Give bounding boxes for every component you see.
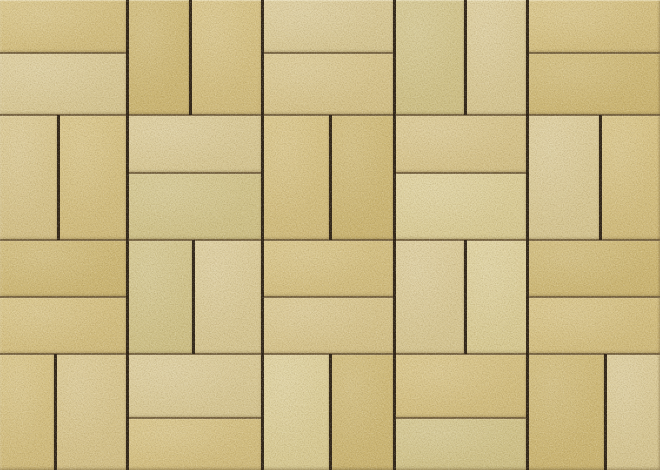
paver-brick <box>394 173 527 240</box>
paver-brick <box>262 115 330 240</box>
paver-brick <box>527 297 660 354</box>
paver-brick <box>55 354 127 470</box>
vertical-mortar-joint <box>604 354 607 470</box>
paver-brick <box>0 115 58 240</box>
paver-brick <box>127 0 190 115</box>
paver-brick <box>394 115 527 173</box>
horizontal-mortar-joint <box>394 172 527 174</box>
horizontal-mortar-joint <box>262 296 394 298</box>
horizontal-mortar-joint <box>394 417 527 419</box>
paver-brick <box>127 418 262 470</box>
vertical-mortar-joint <box>464 0 467 115</box>
paver-brick <box>527 240 660 297</box>
vertical-mortar-joint <box>57 115 60 240</box>
horizontal-mortar-joint <box>127 417 262 419</box>
vertical-mortar-joint <box>189 0 192 115</box>
paver-basketweave-photo <box>0 0 660 470</box>
horizontal-mortar-joint <box>527 296 660 298</box>
paver-brick <box>394 240 465 354</box>
paver-brick <box>262 354 330 470</box>
paver-brick <box>527 115 600 240</box>
paver-brick <box>262 53 394 115</box>
vertical-mortar-joint <box>599 115 602 240</box>
paver-brick <box>394 0 465 115</box>
horizontal-mortar-joint <box>0 296 127 298</box>
horizontal-mortar-joint <box>262 52 394 54</box>
vertical-mortar-joint <box>192 240 195 354</box>
vertical-mortar-joint <box>126 0 129 470</box>
paver-brick <box>527 0 660 53</box>
horizontal-mortar-joint <box>0 52 127 54</box>
vertical-mortar-joint <box>54 354 57 470</box>
paver-brick <box>127 115 262 173</box>
horizontal-mortar-joint <box>527 52 660 54</box>
paver-brick <box>0 0 127 53</box>
paver-brick <box>0 354 55 470</box>
paver-brick <box>330 115 394 240</box>
paver-brick <box>190 0 262 115</box>
vertical-mortar-joint <box>464 240 467 354</box>
paver-brick <box>58 115 127 240</box>
paver-brick <box>330 354 394 470</box>
paver-brick <box>0 53 127 115</box>
paver-brick <box>394 418 527 470</box>
paver-brick <box>0 297 127 354</box>
paver-brick <box>394 354 527 418</box>
paver-brick <box>127 173 262 240</box>
vertical-mortar-joint <box>393 0 396 470</box>
paver-brick <box>600 115 660 240</box>
vertical-mortar-joint <box>329 115 332 240</box>
vertical-mortar-joint <box>261 0 264 470</box>
paver-brick <box>527 354 605 470</box>
vertical-mortar-joint <box>329 354 332 470</box>
paver-brick <box>262 297 394 354</box>
horizontal-mortar-joint <box>127 172 262 174</box>
paver-brick <box>527 53 660 115</box>
paver-brick <box>193 240 262 354</box>
paver-brick <box>465 0 527 115</box>
paver-brick <box>127 240 193 354</box>
paver-brick <box>605 354 660 470</box>
paver-brick <box>262 0 394 53</box>
vertical-mortar-joint <box>526 0 529 470</box>
paver-brick <box>0 240 127 297</box>
paver-brick <box>262 240 394 297</box>
paver-brick <box>127 354 262 418</box>
